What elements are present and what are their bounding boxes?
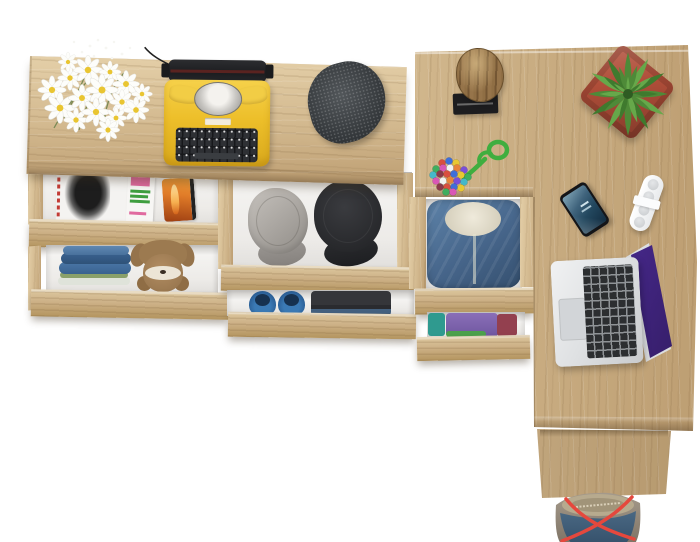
teddy-bear — [131, 240, 195, 295]
hoodie-drawer-front — [415, 287, 534, 314]
flame-art — [170, 184, 180, 214]
jeans-layer — [58, 277, 130, 285]
jeans-drawer-front — [31, 289, 229, 319]
magazine-text-line — [130, 189, 150, 193]
drawer-side-rail — [28, 168, 43, 224]
shoes-drawer-front — [228, 312, 416, 340]
typebar-basket — [194, 82, 242, 117]
panel-top-shadow — [540, 430, 668, 437]
brand-label — [205, 118, 231, 125]
laptop-body — [550, 257, 643, 367]
orange-phone-case — [162, 177, 197, 222]
fashion-magazine — [56, 172, 131, 223]
laptop-trackpad — [558, 298, 587, 341]
magazine-text-line — [130, 199, 150, 203]
charger-socket — [632, 215, 646, 229]
charger-socket — [646, 178, 660, 192]
cap-seam — [323, 189, 373, 243]
green-magazine — [126, 173, 155, 222]
fleece-lining — [445, 202, 501, 236]
furniture-scene — [0, 0, 700, 542]
typewriter — [163, 57, 272, 168]
cap-seam — [256, 196, 300, 246]
teddy-nose — [160, 270, 166, 274]
folded-clothes-drawer-front — [417, 335, 530, 361]
spacebar — [195, 153, 239, 159]
magazine-text-line — [130, 194, 148, 198]
bead-necklace — [424, 136, 520, 200]
platen-knob — [265, 64, 273, 78]
jeans-layer — [63, 246, 129, 255]
log-decor — [456, 48, 504, 102]
bead-cluster — [429, 157, 471, 195]
folded-jeans-stack — [58, 246, 132, 287]
tote-bag — [546, 487, 650, 542]
platen-knob — [161, 63, 169, 77]
black-patrol-cap — [314, 180, 384, 268]
stand-groove — [457, 102, 493, 105]
magazine-photo — [64, 172, 111, 223]
hoodie-zipper — [473, 234, 476, 284]
magazine-pink-title — [131, 176, 150, 186]
typewriter-keyboard — [175, 128, 257, 163]
magazine-spine-text — [57, 176, 61, 216]
shoe-opening — [284, 294, 299, 306]
drawer-side-rail — [218, 172, 233, 269]
denim-hoodie — [427, 200, 521, 288]
teal-shirt — [428, 313, 445, 336]
drawer-side-rail — [409, 197, 426, 289]
platen-ribbon — [170, 69, 264, 73]
laptop-keyboard — [583, 264, 638, 358]
maroon-shirt — [497, 314, 517, 336]
shoe-opening — [255, 294, 270, 306]
magazine-text-line — [129, 211, 146, 215]
gray-patrol-cap — [248, 188, 310, 268]
succulent-plant — [574, 34, 682, 148]
